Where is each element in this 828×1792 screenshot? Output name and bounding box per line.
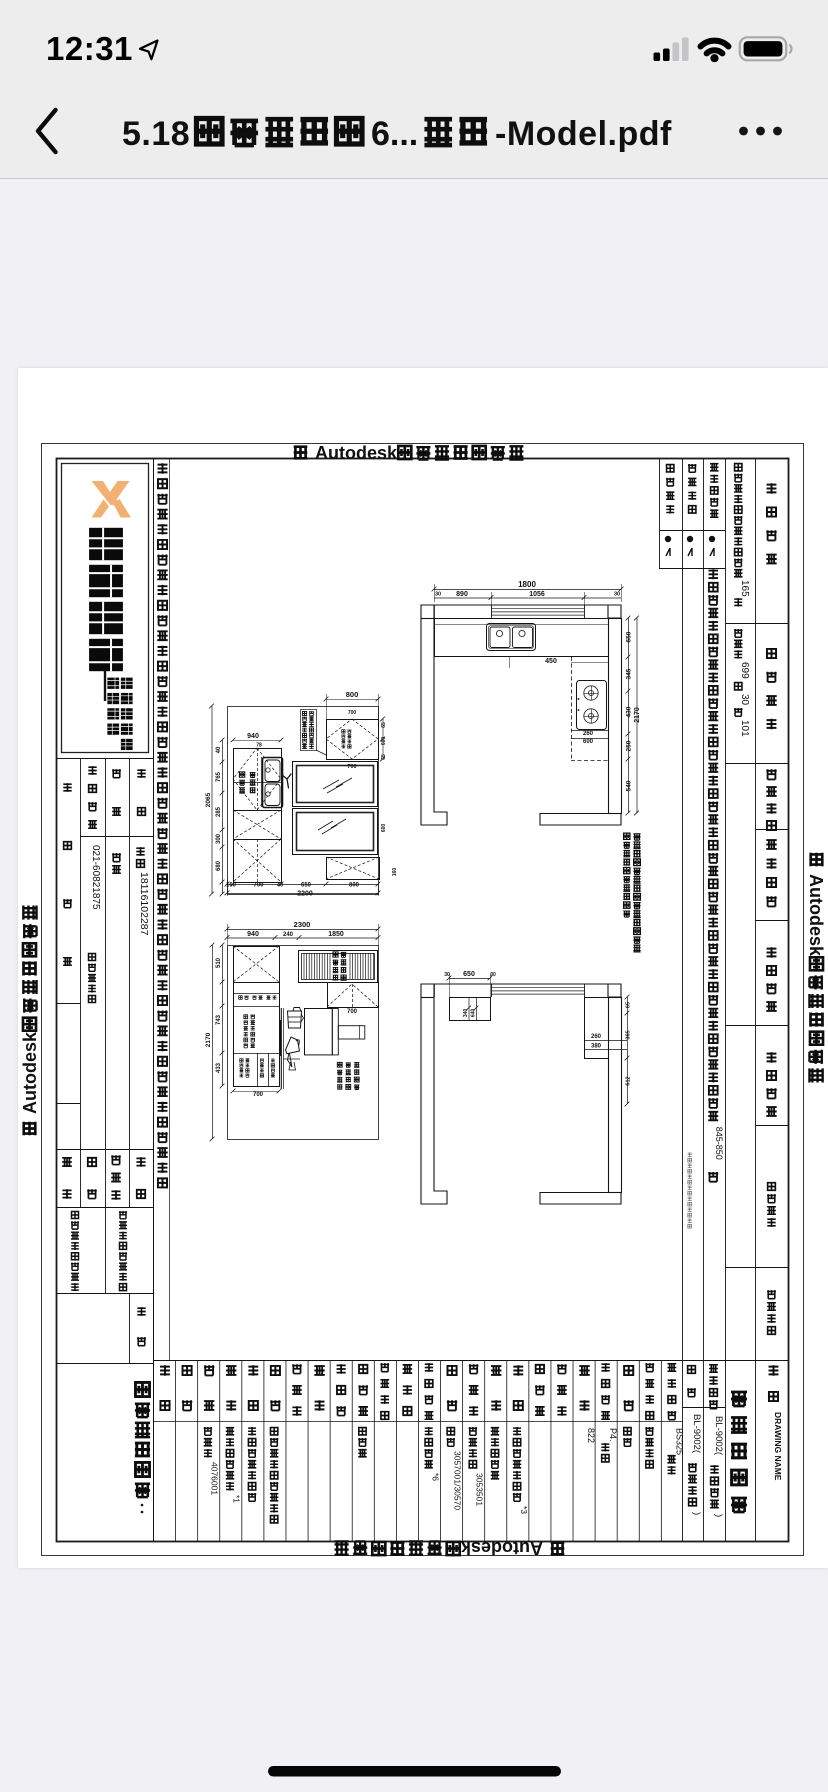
- svg-text:): ): [691, 1512, 702, 1515]
- svg-text:600: 600: [381, 824, 387, 833]
- svg-text:650: 650: [301, 883, 312, 889]
- svg-text:285: 285: [216, 806, 222, 817]
- svg-text:2200: 2200: [297, 891, 313, 898]
- svg-text:BS325: BS325: [674, 1428, 684, 1455]
- svg-text:450: 450: [545, 658, 557, 665]
- svg-text:743: 743: [216, 1014, 222, 1025]
- svg-text:40: 40: [277, 883, 283, 889]
- svg-text:-Model.pdf: -Model.pdf: [495, 115, 672, 153]
- svg-text:612: 612: [626, 1076, 632, 1085]
- svg-text:700: 700: [253, 883, 264, 889]
- svg-text:78: 78: [256, 743, 262, 749]
- svg-text:1056: 1056: [529, 591, 545, 598]
- svg-text:650: 650: [463, 971, 475, 978]
- svg-text:2170: 2170: [205, 1032, 212, 1047]
- svg-text:699: 699: [739, 662, 750, 679]
- svg-text:700: 700: [347, 1009, 358, 1015]
- svg-text:540: 540: [626, 780, 633, 791]
- svg-text:250: 250: [626, 740, 633, 751]
- svg-text:800: 800: [346, 690, 359, 699]
- svg-text:700: 700: [348, 710, 357, 716]
- svg-text:65: 65: [381, 754, 387, 760]
- svg-text:700: 700: [347, 764, 356, 770]
- svg-text:1800: 1800: [518, 580, 536, 589]
- svg-text:30: 30: [490, 972, 496, 978]
- svg-text:65: 65: [626, 1002, 632, 1008]
- svg-text:340: 340: [463, 1009, 469, 1018]
- svg-text:30: 30: [614, 592, 620, 598]
- svg-text:Autodesk: Autodesk: [806, 874, 826, 957]
- svg-text:18116102287: 18116102287: [138, 872, 150, 936]
- svg-text:700: 700: [253, 1092, 264, 1098]
- svg-text:12:31: 12:31: [46, 30, 133, 67]
- svg-text:240: 240: [283, 932, 294, 938]
- svg-text:2170: 2170: [634, 707, 641, 723]
- svg-text:30: 30: [739, 694, 750, 706]
- svg-text:021-60821875: 021-60821875: [90, 845, 101, 910]
- svg-text:300: 300: [216, 833, 222, 844]
- svg-text:160: 160: [392, 868, 398, 877]
- svg-text:1850: 1850: [328, 931, 344, 938]
- svg-text:345: 345: [626, 668, 633, 679]
- svg-text:6...: 6...: [371, 115, 418, 153]
- svg-text:2065: 2065: [205, 792, 212, 807]
- svg-text:260: 260: [591, 1034, 602, 1040]
- svg-text:510: 510: [216, 957, 222, 968]
- svg-text:260: 260: [583, 731, 594, 737]
- svg-text:765: 765: [216, 771, 222, 782]
- svg-text:101: 101: [739, 720, 750, 737]
- svg-text:940: 940: [247, 733, 259, 740]
- svg-text:30: 30: [444, 972, 450, 978]
- svg-text:600: 600: [381, 737, 387, 746]
- svg-text:*1: *1: [232, 1495, 242, 1503]
- svg-text:890: 890: [456, 591, 468, 598]
- svg-text:165: 165: [739, 580, 750, 597]
- svg-text:BL-9002(: BL-9002(: [713, 1416, 724, 1456]
- svg-text:3057001/30570: 3057001/30570: [453, 1451, 463, 1510]
- svg-text:P4.: P4.: [608, 1428, 618, 1442]
- svg-text:600: 600: [583, 739, 594, 745]
- svg-text:822: 822: [586, 1428, 596, 1443]
- svg-text:40: 40: [216, 746, 222, 753]
- svg-text:680: 680: [216, 860, 222, 871]
- svg-text:3053501: 3053501: [475, 1473, 485, 1506]
- svg-text:800: 800: [349, 883, 360, 889]
- svg-text:4076001: 4076001: [210, 1462, 220, 1495]
- svg-text:*6: *6: [430, 1473, 440, 1481]
- svg-text:380: 380: [591, 1044, 602, 1050]
- svg-text:DRAWING NAME: DRAWING NAME: [773, 1412, 783, 1481]
- svg-text:365: 365: [626, 1030, 632, 1039]
- svg-text:845-850: 845-850: [714, 1127, 724, 1160]
- svg-text:430: 430: [626, 706, 633, 717]
- svg-text:30: 30: [435, 592, 441, 598]
- svg-text:*3: *3: [519, 1506, 529, 1514]
- svg-text:940: 940: [247, 931, 259, 938]
- svg-text:): ): [713, 1514, 724, 1517]
- svg-text:640: 640: [471, 1009, 477, 1018]
- svg-text:Autodesk: Autodesk: [460, 1538, 543, 1558]
- svg-text:Autodesk: Autodesk: [315, 443, 398, 463]
- svg-text:5.18: 5.18: [122, 115, 190, 153]
- svg-text:433: 433: [216, 1062, 222, 1073]
- svg-text:2300: 2300: [294, 920, 311, 929]
- svg-text:65: 65: [381, 722, 387, 728]
- svg-text:BL-9002(: BL-9002(: [691, 1414, 702, 1454]
- svg-text:650: 650: [626, 631, 633, 642]
- svg-text:Autodesk: Autodesk: [20, 1031, 40, 1114]
